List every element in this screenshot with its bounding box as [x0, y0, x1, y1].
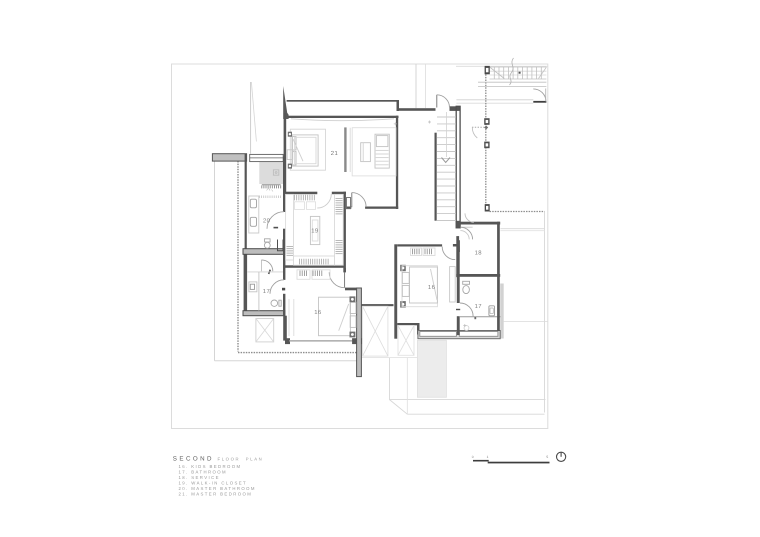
svg-text:19: 19: [311, 227, 318, 234]
svg-text:20: 20: [263, 217, 271, 224]
svg-text:20. MASTER BATHROOM: 20. MASTER BATHROOM: [179, 486, 256, 491]
svg-text:18. SERVICE: 18. SERVICE: [179, 475, 220, 480]
svg-text:SECOND: SECOND: [173, 456, 214, 463]
svg-text:1: 1: [487, 455, 489, 459]
svg-text:16. KIDS BEDROOM: 16. KIDS BEDROOM: [179, 464, 242, 469]
svg-text:5: 5: [546, 455, 548, 459]
svg-text:21. MASTER BEDROOM: 21. MASTER BEDROOM: [179, 491, 253, 496]
svg-text:21: 21: [331, 150, 338, 157]
svg-text:16: 16: [428, 284, 436, 291]
svg-text:17: 17: [475, 303, 482, 310]
svg-text:FLOOR PLAN: FLOOR PLAN: [218, 456, 264, 461]
svg-text:17: 17: [263, 288, 270, 295]
svg-text:0: 0: [472, 455, 474, 459]
svg-text:16: 16: [314, 309, 322, 316]
svg-text:19. WALK-IN CLOSET: 19. WALK-IN CLOSET: [179, 480, 248, 485]
svg-text:18: 18: [475, 249, 483, 256]
svg-text:17. BATHROOM: 17. BATHROOM: [179, 469, 227, 474]
